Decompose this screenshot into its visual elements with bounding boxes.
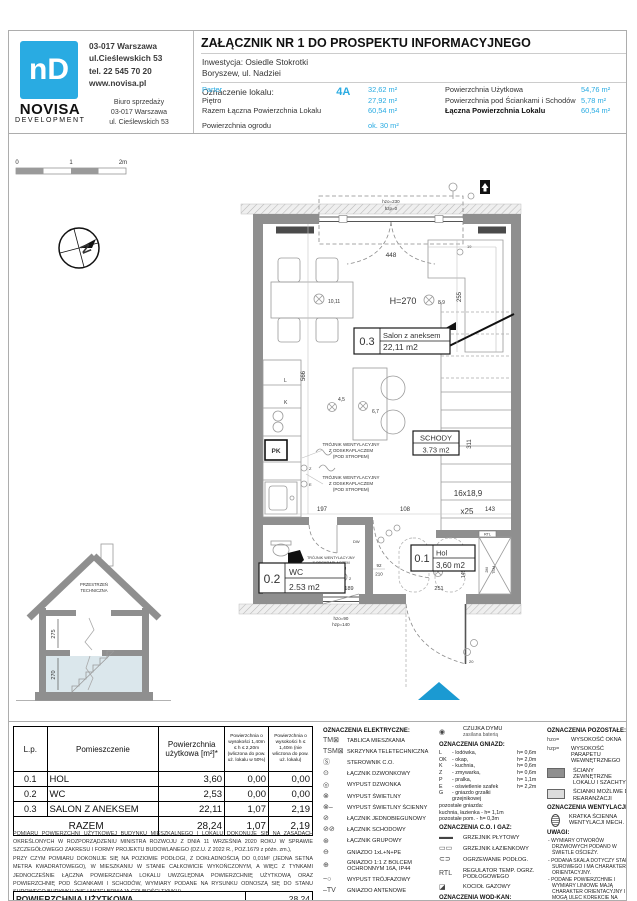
walls-re-item: ŚCIANKI MOŻLIWE DO REARANŻACJI [547,789,627,802]
legend-symbol: ◪ [439,884,463,892]
schody-name: SCHODY [420,434,452,443]
stat-label: Łączna Powierzchnia Lokalu [445,106,581,117]
legend-item: TSM⊠ SKRZYNKA TELETECHNICZNA [323,748,435,756]
cell-h2: 0,00 [268,772,312,787]
socket-height-row: P - pralka, h= 1,1m [439,778,543,784]
dim-566: 566 [301,370,307,381]
vent-grille-icon [551,814,560,827]
stat-label: Powierzchnia pod Ściankami i Schodów [445,96,581,107]
legend-item: ⊘⊘ ŁĄCZNIK SCHODOWY [323,826,435,834]
legend-symbol: ⊘ [323,815,347,823]
floor-plan: hzo=230 hzp=0 448 19 [239,180,521,700]
stat-value: 27,92 m² [368,96,412,107]
socket-height: h= 1,1m [517,778,543,784]
legend-item: ⊙ ŁĄCZNIK DZWONKOWY [323,770,435,778]
hol-number: 0.1 [414,553,429,565]
socket-code: G [439,791,452,803]
legend-symbol: ⊖ [323,849,347,857]
disclaimer-paragraph: POMIARU POWIERZCHNI UŻYTKOWEJ BUDYNKU MI… [13,830,313,854]
investment-name: Inwestycja: Osiedle Stokrotki [202,57,626,68]
legend-pozostale-title: OZNACZENIA POZOSTAŁE: [547,728,627,735]
office-line: Biuro sprzedaży [89,98,189,108]
compass-north-label: N [77,242,94,256]
exterior-hatch-right [466,604,521,614]
wall-re-swatch [547,789,565,799]
dim-197: 197 [317,507,328,513]
terrace-window-hzp: hzp=0 [385,206,398,211]
attic-label-2: TECHNICZNA [81,588,108,593]
dw-label: DW [353,539,360,544]
socket-code: L [439,751,452,757]
summary-label: POWIERZCHNIA UŻYTKOWA [14,892,245,901]
stat-value: 60,54 m² [581,106,625,117]
vent-note-2: TRÓJNIK WENTYLACYJNY Z ODSKRAPLACZEM (PO… [306,474,380,492]
hzp-item: hzp= WYSOKOŚĆ PARAPETU WEWNĘTRZNEGO [547,746,627,765]
legend-label: WYPUST ŚWIETLNY ŚCIENNY [347,805,435,811]
stat-value: ok. 30 m² [368,121,412,132]
legend-gniazda-title: OZNACZENIA GNIAZD: [439,742,543,749]
socket-height [517,791,543,803]
legend-co-title: OZNACZENIA C.O. I GAZ: [439,825,543,832]
legend-label: OGRZEWANIE PODŁOG. [463,857,543,863]
usable-area-summary-row: POWIERZCHNIA UŻYTKOWA 28,24 [13,891,313,901]
scale-bar: 0 1 2m [15,160,127,174]
address-line: www.novisa.pl [89,77,189,89]
dim-92: 92 [376,563,382,568]
lamp-label-6-7: 6,7 [372,409,379,415]
vent-note-1: TRÓJNIK WENTYLACYJNY Z ODSKRAPLACZEM (PO… [302,441,380,459]
cell-lp: 0.2 [14,787,48,802]
cell-h2: 2,19 [268,802,312,817]
legend-middle: ◉ CZUJKA DYMU zasilana baterią OZNACZENI… [439,726,543,901]
address-line: ul.Cieślewskich 53 [89,52,189,64]
radiator [478,227,506,234]
header-right: ZAŁĄCZNIK NR 1 DO PROSPEKTU INFORMACYJNE… [201,31,626,133]
legend-item: ⊗– WYPUST ŚWIETLNY ŚCIENNY [323,804,435,812]
lamp-label-8-9: 8,9 [438,300,445,306]
cell-lp: 0.1 [14,772,48,787]
rtl-label: RTL [484,533,491,537]
sales-office-address: Biuro sprzedaży03-017 Warszawaul. Cieśle… [89,98,189,128]
hol-label: 0.1 Hol 3,60 m2 [411,545,475,571]
dim-448: 448 [386,252,397,259]
uwagi-item: PODANE POWIERZCHNIE I WYMIARY LINIOWE MA… [552,877,627,901]
wall-exterior-label: ŚCIANY ZEWNĘTRZNE LOKALU I SZACHTY [573,768,627,787]
hzp-symbol: hzp= [547,746,571,765]
cell-h1: 1,07 [225,802,269,817]
wc-name: WC [289,567,303,577]
legend-item: Ⓢ STEROWNIK C.O. [323,759,435,767]
measurement-disclaimer: POMIARU POWIERZCHNI UŻYTKOWEJ BUDYNKU MI… [13,830,313,897]
wall-exterior-swatch [547,768,565,778]
disclaimer-paragraph: PRZY CZYM POMIARU DOKONUJE SIĘ NA POZIOM… [13,855,313,896]
scale-1: 1 [69,160,73,166]
address-line: 03-017 Warszawa [89,40,189,52]
legend-label: KOCIOŁ GAZOWY [463,884,543,890]
salon-name: Salon z aneksem [383,331,441,340]
smoke-detector-item: ◉ CZUJKA DYMU zasilana baterią [439,726,543,739]
legend-label: GNIAZDO 1xL+N+PE [347,850,435,856]
office-line: ul. Cieślewskich 53 [89,118,189,128]
terrace-fixtures [449,180,490,199]
company-logo-icon: nD [20,41,78,99]
socket-desc: - gniazdo grzałki grzejnikowej [452,791,517,803]
entrance-marker [418,682,460,700]
cell-area: 22,11 [159,802,225,817]
dim-20: 20 [469,659,474,664]
legend-symbol: ⊗ [323,793,347,801]
stat-value: 60,54 m² [368,106,412,117]
header: nD NOVISA DEVELOPMENT 03-017 Warszawaul.… [8,30,627,134]
dim-143: 143 [485,507,496,513]
lamp-label-10-11: 10,11 [328,299,340,305]
legend-item: ⊂⊃ OGRZEWANIE PODŁOG. [439,856,543,864]
entrance-door: 20 [406,604,478,688]
hzo-label: WYSOKOŚĆ OKNA [571,737,621,743]
legend-symbol: RTL [439,870,463,878]
cross-section: 275 270 PRZESTRZEŃ TECHNICZNA [16,544,171,701]
stat-value: 54,76 m² [581,85,625,96]
cell-room: HOL [47,772,159,787]
legend-label: GNIAZDO ANTENOWE [347,888,435,894]
terrace-hatch [241,204,521,214]
wc-area: 2.53 m2 [289,582,320,592]
bottom-section: L.p. Pomieszczenie Powierzchnia użytkowa… [8,722,627,901]
legend-label: SKRZYNKA TELETECHNICZNA [347,749,435,755]
document-title: ZAŁĄCZNIK NR 1 DO PROSPEKTU INFORMACYJNE… [201,31,626,54]
legend-symbol: ⊛ [323,838,347,846]
hzp-label: WYSOKOŚĆ PARAPETU WEWNĘTRZNEGO [571,746,627,765]
legend-item: ▬▬ GRZEJNIK PŁYTOWY [439,834,543,842]
vent-note-line: TRÓJNIK WENTYLACYJNY [307,555,356,560]
salon-label: 0.3 Salon z aneksem 22,11 m2 [354,328,450,354]
socket-height-row: L - lodówka, h= 0,6m [439,751,543,757]
legend-right: OZNACZENIA POZOSTAŁE: hzo= WYSOKOŚĆ OKNA… [547,726,627,901]
legend-label: GRZEJNIK PŁYTOWY [463,835,543,841]
shaft-label-2m: 2M [485,567,489,572]
legend-item: ◪ KOCIOŁ GAZOWY [439,884,543,892]
dim-311: 311 [467,439,473,449]
schody-area: 3.73 m2 [422,446,449,455]
schody-label: SCHODY 3.73 m2 [413,431,459,455]
stat-value: 32,62 m² [368,85,412,96]
socket-code: P [439,778,452,784]
legend-label: WYPUST TRÓJFAZOWY [347,877,435,883]
legend-label: ŁĄCZNIK SCHODOWY [347,827,435,833]
socket-label-l: L [284,378,287,384]
stat-value: 5,78 m² [581,96,625,107]
scale-0: 0 [15,160,19,166]
header-divider [193,31,194,133]
legend-symbol: ⊙ [323,770,347,778]
legend-symbol: ⊘⊘ [323,826,347,834]
cell-room: SALON Z ANEKSEM [47,802,159,817]
legend-label: ŁĄCZNIK GRUPOWY [347,838,435,844]
company-address: 03-017 Warszawaul.Cieślewskich 53tel. 22… [89,40,189,90]
lamp-label-2: 2 [349,576,352,581]
legend-item: ~○ WYPUST TRÓJFAZOWY [323,876,435,884]
table-row: 0.3 SALON Z ANEKSEM 22,11 1,07 2,19 [14,802,313,817]
stats-left: Parter32,62 m² Piętro27,92 m² Razem Łącz… [202,85,412,132]
legend-item: ◎ WYPUST DZWONKA [323,782,435,790]
legend-symbol: ⊗– [323,804,347,812]
legend-item: RTL REGULATOR TEMP. OGRZ. PODŁOGOWEGO [439,868,543,881]
legend-wodkan-title: OZNACZENIA WOD-KAN: [439,895,543,901]
col-h1: Powierzchnia o wysokości 1,40m ≤ h ≤ 2,2… [225,727,269,772]
dim-210: 210 [375,572,383,577]
stat-label: Piętro [202,96,368,107]
vent-note-line: TRÓJNIK WENTYLACYJNY [322,441,379,447]
cell-area: 2,53 [159,787,225,802]
legend-symbol: –TV [323,887,347,895]
vent-note-line: TRÓJNIK WENTYLACYJNY [322,474,379,480]
legend-symbol: TSM⊠ [323,748,347,756]
socket-height-row: G - gniazdo grzałki grzejnikowej [439,791,543,803]
legend-went-title: OZNACZENIA WENTYLACJI: [547,805,627,812]
salon-area: 22,11 m2 [383,342,418,352]
legend-label: WYPUST ŚWIETLNY [347,794,435,800]
pk-label: PK [271,448,280,455]
terrace-window-hzo: hzo=230 [382,199,400,204]
socket-label-e: E [309,482,312,487]
col-room: Pomieszczenie [47,727,159,772]
vent-note-line: (POD STROPEM) [333,454,370,459]
socket-height: h= 0,6m [517,751,543,757]
wc-window-hzo: hzo=90 [334,616,349,621]
hol-name: Hol [436,549,448,558]
dining-set [271,258,353,342]
room-height-note: H=270 [390,296,417,306]
legend-symbol: ~○ [323,876,347,884]
dim-19: 19 [467,244,472,249]
wc-window-hzp: hzp=140 [332,622,350,627]
wall-re-label: ŚCIANKI MOŻLIWE DO REARANŻACJI [573,789,627,802]
legend-item: ⊖ GNIAZDO 1xL+N+PE [323,849,435,857]
legend-symbol: Ⓢ [323,759,347,767]
vent-grille-label: KRATKA ŚCIENNA WENTYLACJI MECH. [569,814,627,827]
stairs-count: x25 [461,507,474,516]
drawing-section: 0 1 2m N [8,134,627,722]
office-line: 03-017 Warszawa [89,108,189,118]
table-row: 0.2 WC 2,53 0,00 0,00 [14,787,313,802]
cell-h2: 0,00 [268,787,312,802]
stat-label: Razem Łączna Powierzchnia Lokalu [202,106,368,117]
stat-label: Powierzchnia Użytkowa [445,85,581,96]
hzo-symbol: hzo= [547,737,571,743]
section-dim-upper: 275 [51,629,57,638]
legend-item: ⊗ WYPUST ŚWIETLNY [323,793,435,801]
legend-symbol: ⊕ [323,862,347,870]
stat-label: Parter [202,85,368,96]
cell-area: 3,60 [159,772,225,787]
legend-uwagi-title: UWAGI: [547,830,627,837]
dim-189: 189 [344,586,353,592]
cell-h1: 0,00 [225,787,269,802]
wc-label: 0.2 WC 2.53 m2 [259,563,345,593]
vent-note-line: Z ODSKRAPLACZEM [329,448,374,453]
socket-desc: - pralka, [452,778,517,784]
socket-extra-note: pozostałe gniazda: [439,804,543,810]
legend-label: GRZEJNIK ŁAZIENKOWY [463,846,543,852]
kitchen-sink [265,482,297,514]
shaft-label-tsm: TSM [492,566,496,574]
vent-note-line: (POD STROPEM) [333,487,370,492]
uwagi-list: WYMIARY OTWORÓW DRZWIOWYCH PODANO W ŚWIE… [547,838,627,901]
walls-exterior-item: ŚCIANY ZEWNĘTRZNE LOKALU I SZACHTY [547,768,627,787]
wc-number: 0.2 [264,572,281,586]
cell-h1: 0,00 [225,772,269,787]
stairs-treads: 16x18,9 [454,489,483,498]
legend-electrical: OZNACZENIA ELEKTRYCZNE: TM⊠ TABLICA MIES… [323,726,435,898]
socket-height: h= 2,2m [517,785,543,791]
vent-grille-item: KRATKA ŚCIENNA WENTYLACJI MECH. [547,814,627,827]
drawing-svg: 0 1 2m N [9,134,628,720]
cell-room: WC [47,787,159,802]
legend-item: TM⊠ TABLICA MIESZKANIA [323,737,435,745]
kitchen-counter: PK L K Z E [263,360,335,517]
area-table: L.p. Pomieszczenie Powierzchnia użytkowa… [13,726,313,836]
hol-area: 3,60 m2 [436,561,465,570]
cell-lp: 0.3 [14,802,48,817]
smoke-detector-icon: ◉ [439,729,463,737]
legend-symbol: ▭▭ [439,845,463,853]
legend-symbol: TM⊠ [323,737,347,745]
uwagi-item: WYMIARY OTWORÓW DRZWIOWYCH PODANO W ŚWIE… [552,838,627,856]
scale-2m: 2m [119,160,127,166]
address-line: tel. 22 545 70 20 [89,65,189,77]
legend-symbol: ⊂⊃ [439,856,463,864]
legend-label: GNIAZDO 1:1 Z BOLCEM OCHRONNYM 16A, IP44 [347,860,435,873]
legend-label: REGULATOR TEMP. OGRZ. PODŁOGOWEGO [463,868,543,881]
legend-label: ŁĄCZNIK JEDNOBIEGUNOWY [347,816,435,822]
col-area: Powierzchnia użytkowa [m²]* [159,727,225,772]
attic-label-1: PRZESTRZEŃ [80,582,108,587]
hzo-item: hzo= WYSOKOŚĆ OKNA [547,737,627,743]
czujka-sub: zasilana baterią [463,732,498,738]
table-row: 0.1 HOL 3,60 0,00 0,00 [14,772,313,787]
uwagi-item: PODANA SKALA DOTYCZY STANU SUROWEGO I MA… [552,858,627,876]
stat-label: Powierzchnia ogrodu [202,121,368,132]
legend-electrical-title: OZNACZENIA ELEKTRYCZNE: [323,728,435,735]
lamp-label-4-5: 4,5 [338,397,345,403]
compass-icon: N [59,228,99,268]
dim-251: 251 [434,586,443,592]
socket-label-z: Z [309,466,312,471]
stats-right: Powierzchnia Użytkowa54,76 m² Powierzchn… [445,85,625,117]
legend-symbol: ◎ [323,782,347,790]
investment-info: Inwestycja: Osiedle Stokrotki Boryszew, … [201,54,626,83]
socket-label-k: K [284,400,288,406]
legend-item: ⊘ ŁĄCZNIK JEDNOBIEGUNOWY [323,815,435,823]
company-name: NOVISA [15,101,85,118]
dim-255: 255 [457,291,463,302]
legend-label: ŁĄCZNIK DZWONKOWY [347,771,435,777]
smoke-detector-label: CZUJKA DYMU zasilana baterią [463,726,543,739]
legend-label: TABLICA MIESZKANIA [347,738,435,744]
dim-108: 108 [400,507,411,513]
legend-item: ⊕ GNIAZDO 1:1 Z BOLCEM OCHRONNYM 16A, IP… [323,860,435,873]
exterior-hatch-left [239,604,406,614]
socket-desc: - lodówka, [452,751,517,757]
investment-address: Boryszew, ul. Nadziei [202,68,626,79]
legend-symbol: ▬▬ [439,834,463,842]
summary-value: 28,24 [245,892,312,901]
legend-item: ▭▭ GRZEJNIK ŁAZIENKOWY [439,845,543,853]
legend-item: –TV GNIAZDO ANTENOWE [323,887,435,895]
legend-item: ⊛ ŁĄCZNIK GRUPOWY [323,838,435,846]
socket-extra-note: pozostałe pom. - h= 0,3m [439,817,543,823]
salon-number: 0.3 [359,336,374,348]
legend-label: WYPUST DZWONKA [347,782,435,788]
czujka-label: CZUJKA DYMU [463,726,502,732]
company-name-sub: DEVELOPMENT [15,117,85,124]
vent-note-line: Z ODSKRAPLACZEM [329,481,374,486]
section-dim-lower: 270 [51,670,57,679]
col-h2: Powierzchnia o wysokości h ≤ 1,40m (nie … [268,727,312,772]
legend-label: STEROWNIK C.O. [347,760,435,766]
col-lp: L.p. [14,727,48,772]
